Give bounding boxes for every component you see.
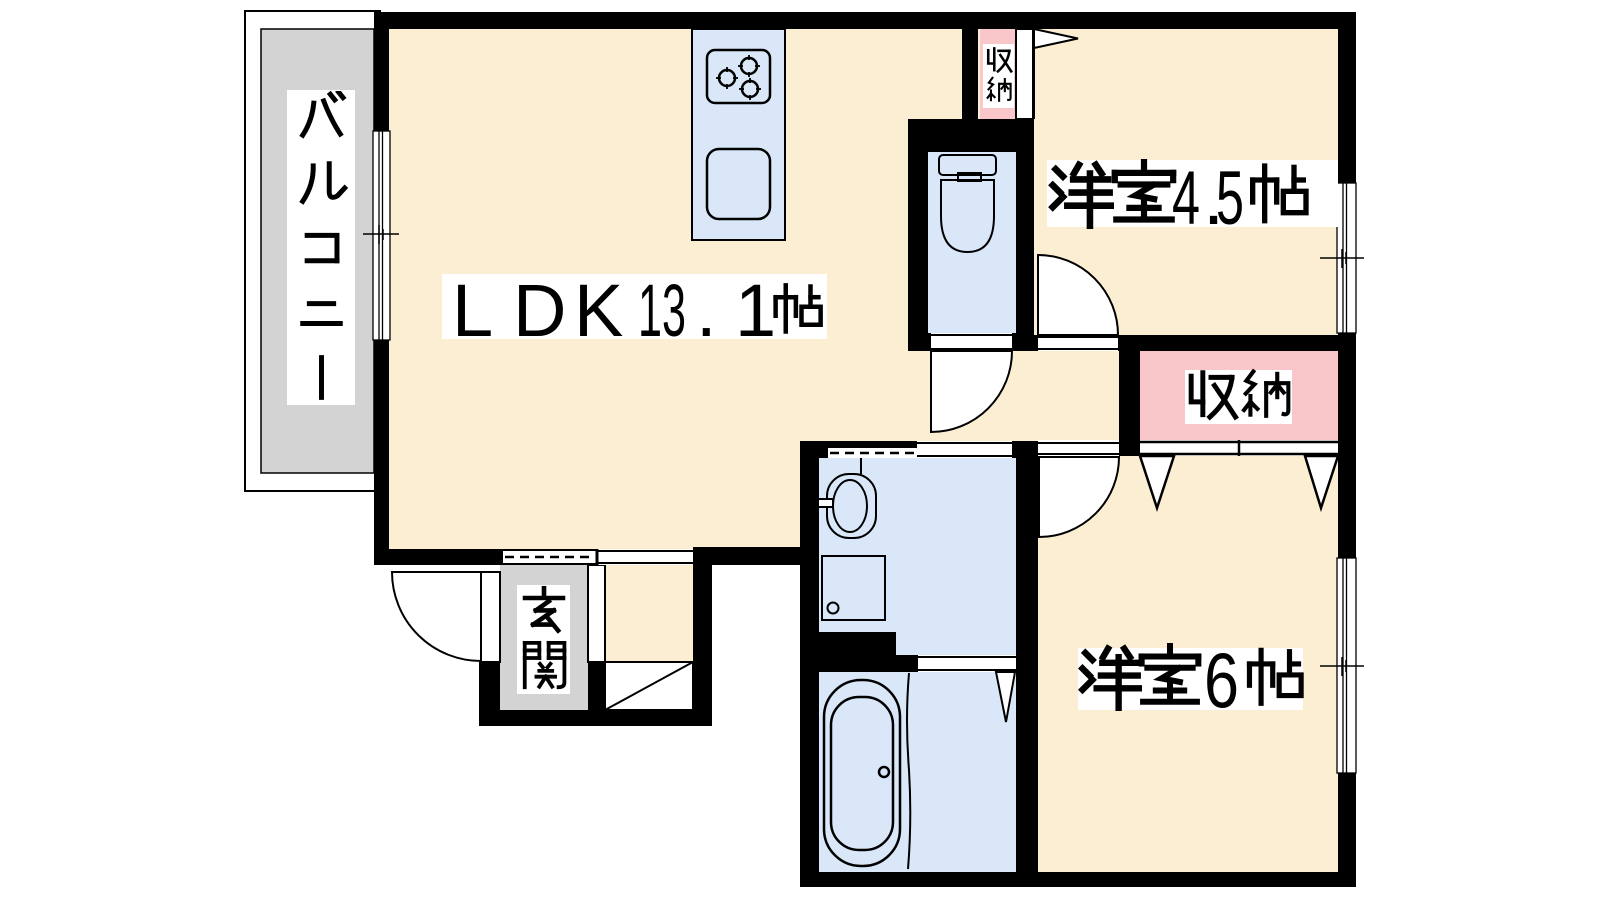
svg-text:L: L <box>452 269 493 352</box>
svg-text:1: 1 <box>735 269 776 352</box>
svg-text:.: . <box>696 269 717 352</box>
svg-text:4: 4 <box>1172 156 1200 241</box>
svg-text:6: 6 <box>1204 636 1239 724</box>
svg-text:13: 13 <box>638 269 686 352</box>
svg-text:5: 5 <box>1216 156 1244 241</box>
svg-text:D: D <box>513 269 566 352</box>
svg-text:K: K <box>574 269 623 352</box>
